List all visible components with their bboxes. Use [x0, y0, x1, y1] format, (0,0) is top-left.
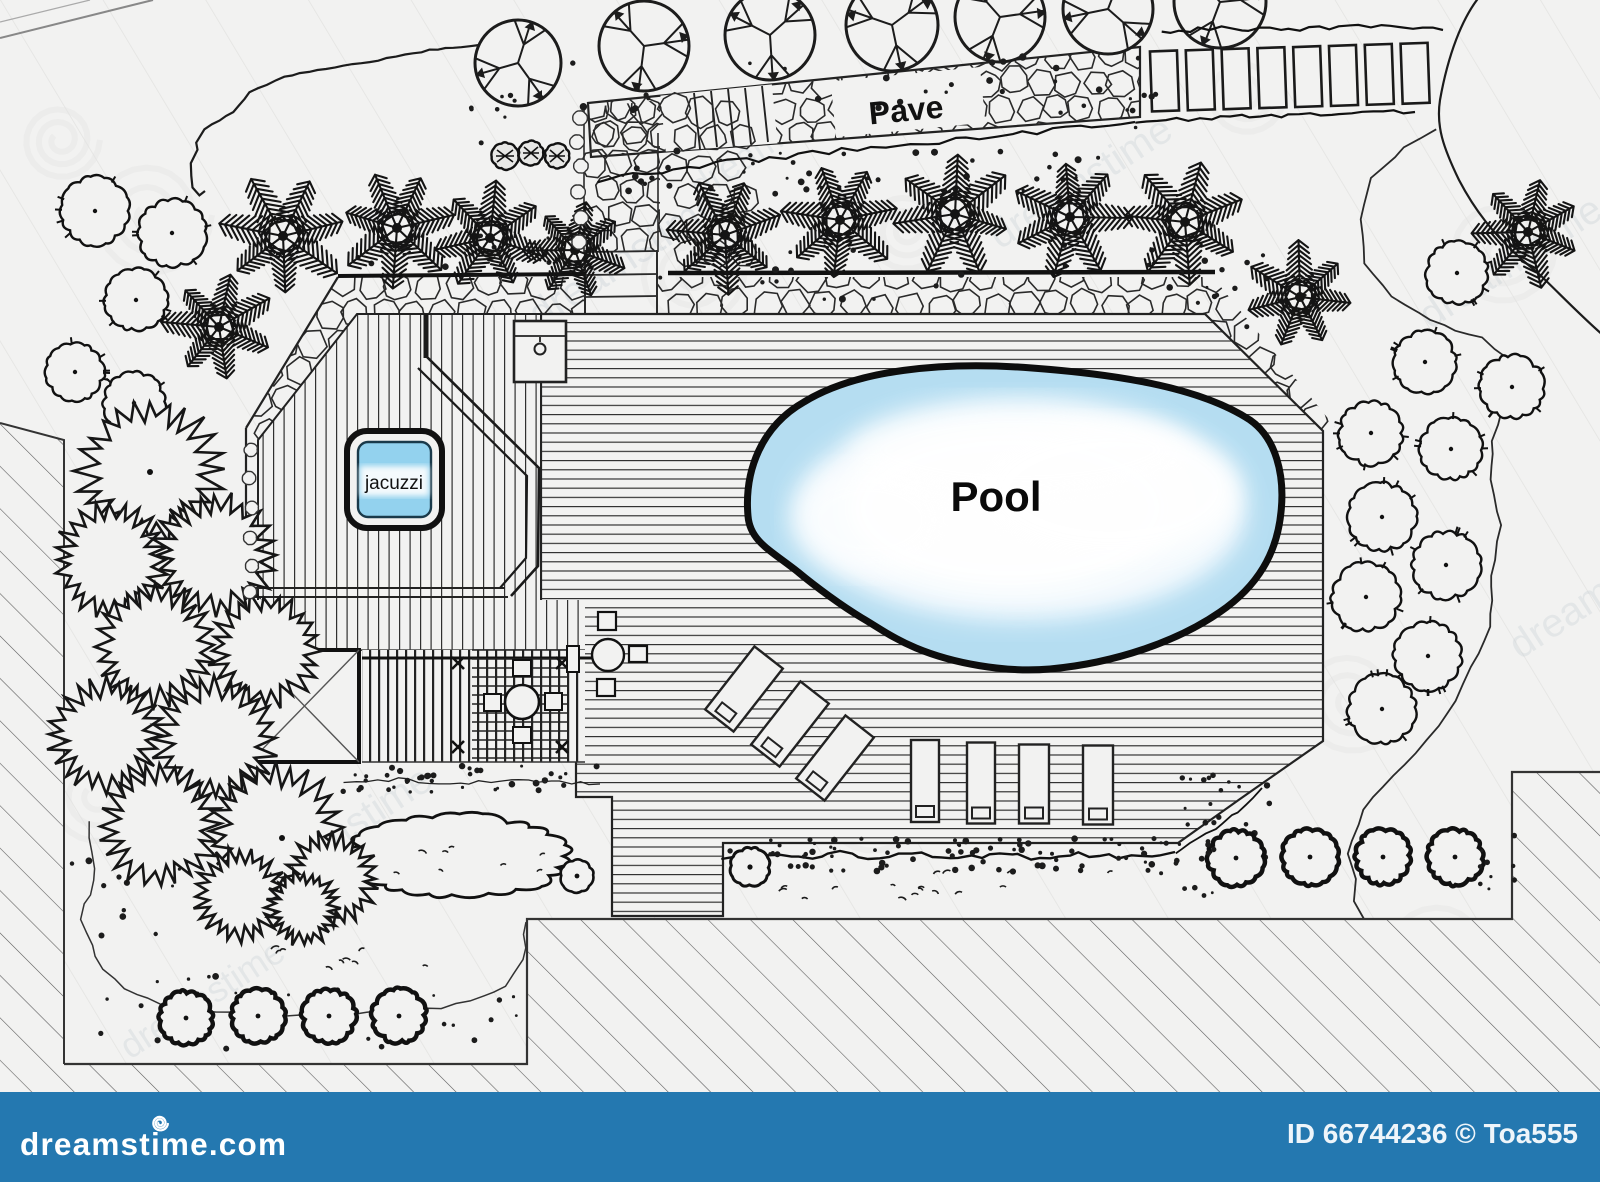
svg-text:Pool: Pool: [951, 473, 1042, 520]
svg-text:jacuzzi: jacuzzi: [364, 473, 423, 494]
svg-text:dreamstime.com: dreamstime.com: [20, 1126, 287, 1162]
svg-text:ID 66744236 © Toa555: ID 66744236 © Toa555: [1287, 1118, 1578, 1149]
